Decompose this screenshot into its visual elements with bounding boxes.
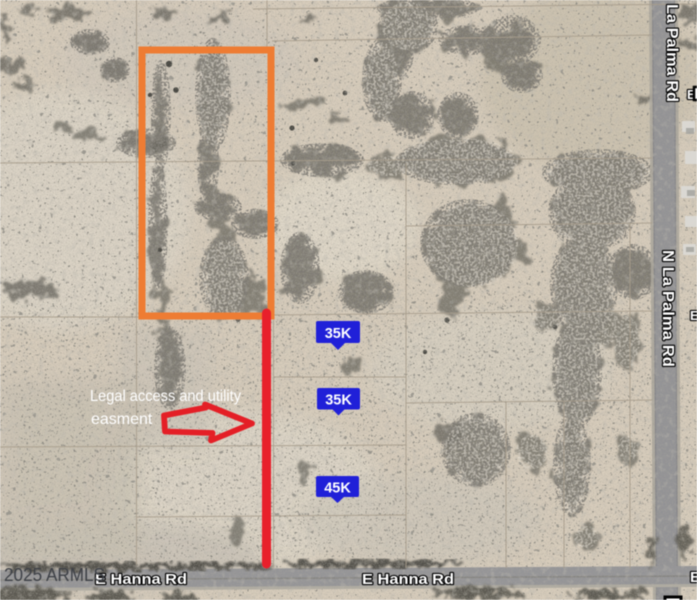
svg-text:easment: easment bbox=[91, 411, 153, 428]
svg-text:E Hanna Rd: E Hanna Rd bbox=[362, 571, 454, 588]
svg-text:E: E bbox=[690, 569, 697, 586]
svg-text:E: E bbox=[690, 308, 697, 323]
svg-text:35K: 35K bbox=[325, 326, 352, 342]
svg-text:2025 ARMLS: 2025 ARMLS bbox=[4, 565, 105, 585]
svg-text:35K: 35K bbox=[325, 393, 352, 409]
svg-text:N La Palma Rd: N La Palma Rd bbox=[659, 250, 676, 367]
svg-text:E Hanna Rd: E Hanna Rd bbox=[95, 571, 187, 588]
svg-text:Legal access and utility: Legal access and utility bbox=[90, 388, 241, 405]
svg-text:La Palma Rd: La Palma Rd bbox=[663, 4, 680, 102]
svg-text:45K: 45K bbox=[324, 481, 351, 497]
